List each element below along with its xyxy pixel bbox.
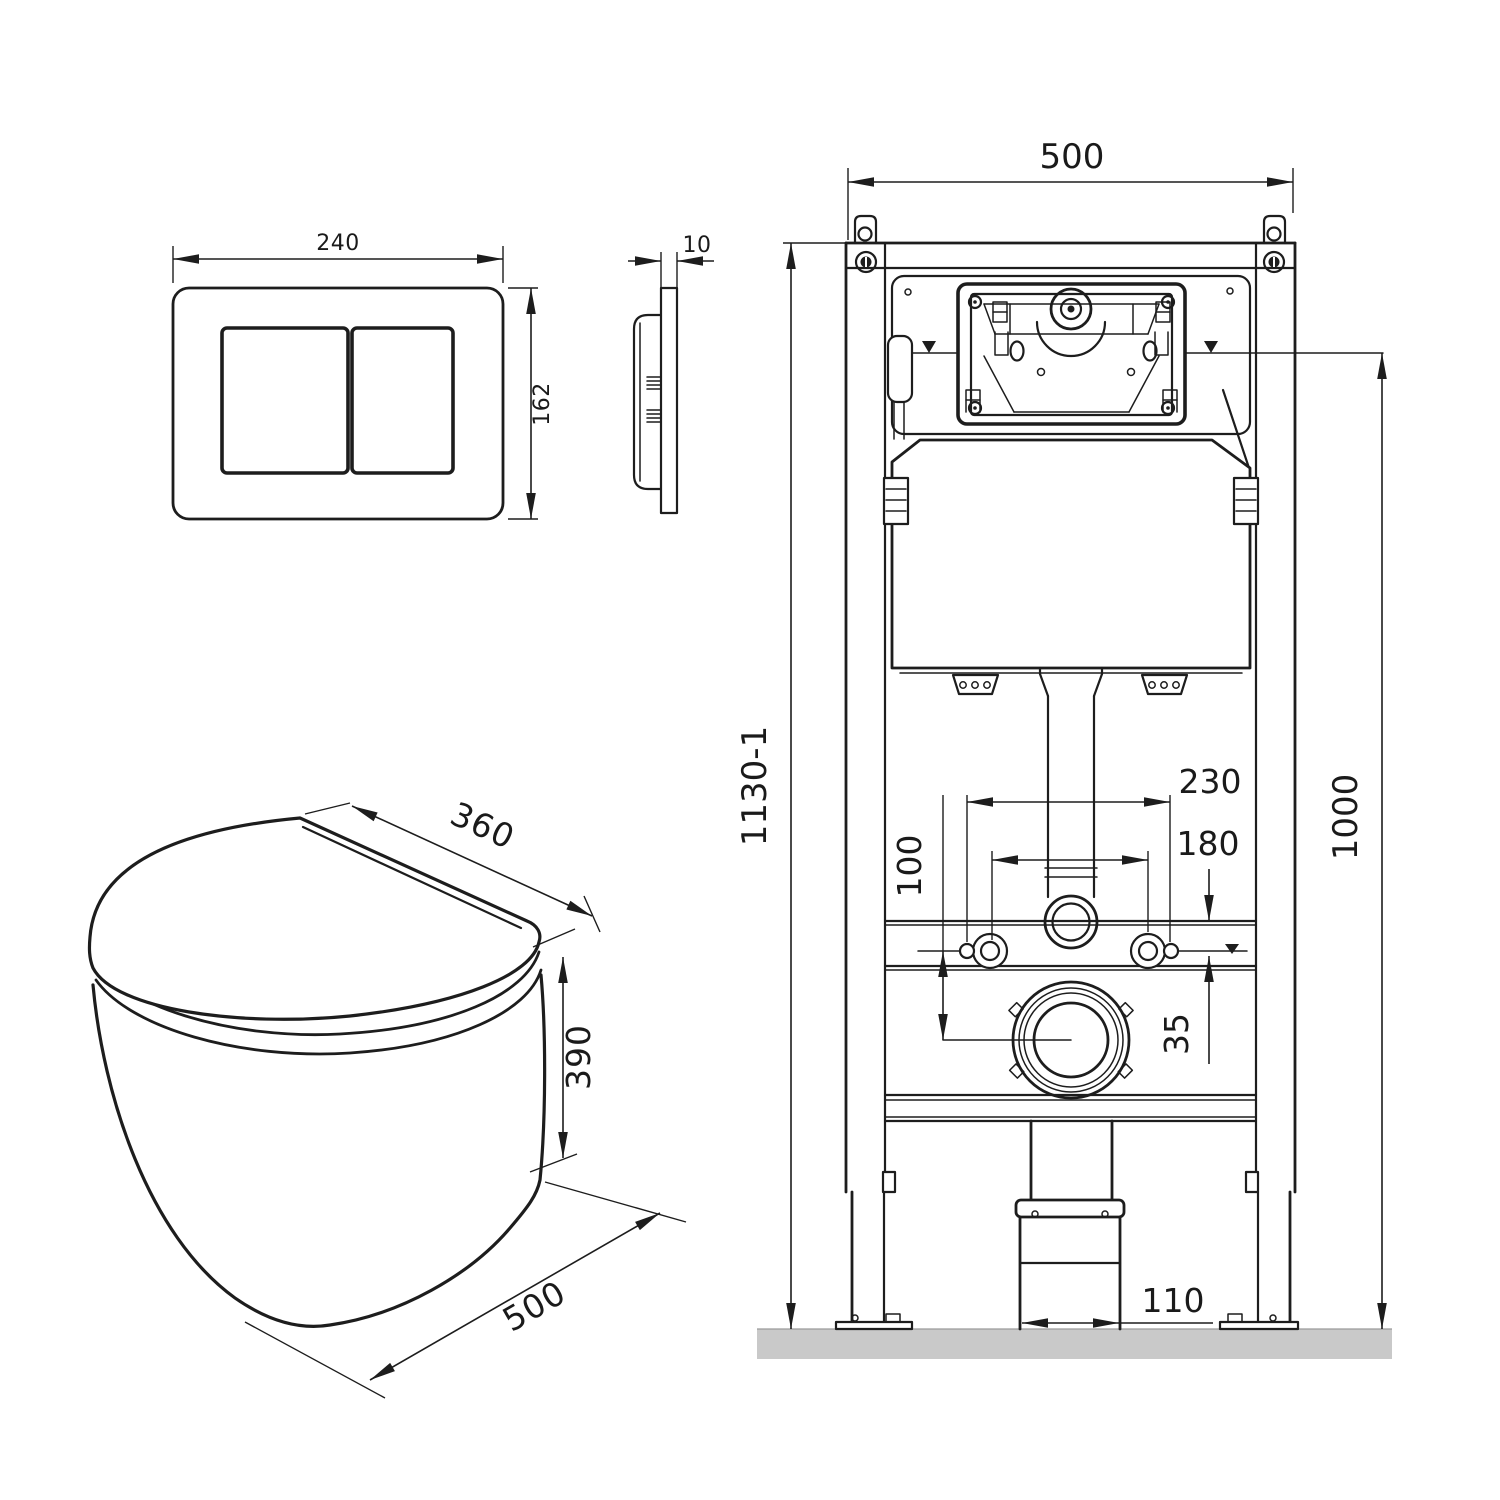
right-leg-clamp <box>1246 1172 1258 1192</box>
dim-plate-width: 240 <box>173 231 503 283</box>
plate-side-body <box>634 315 661 489</box>
level-mark-small <box>1225 944 1239 954</box>
bowl-body-outline <box>93 975 545 1326</box>
toilet-bowl-view: 360 390 500 <box>89 794 686 1398</box>
frame-top-crossbar <box>846 216 1295 272</box>
dim-bowl-height: 390 <box>530 929 598 1172</box>
water-level-line <box>893 341 1383 353</box>
frame-legs <box>836 1172 1298 1329</box>
dim-plate-thickness: 10 <box>628 233 714 288</box>
right-hanger-hook <box>1264 216 1285 243</box>
cistern-tank <box>884 440 1258 694</box>
dim-flush-level-height: 1000 <box>1326 353 1382 1329</box>
drain-pipe-width-label: 110 <box>1142 1281 1205 1320</box>
frame-width-label: 500 <box>1040 137 1105 177</box>
dim-drain-pipe-width: 110 <box>1022 1281 1213 1323</box>
flush-plate-side-view: 10 <box>628 233 714 513</box>
frame-total-height-label: 1130-1 <box>735 726 775 846</box>
flush-plate-front-view: 240 162 <box>173 231 555 519</box>
left-hanger-hook <box>855 216 876 243</box>
plate-side-panel <box>661 288 677 513</box>
installation-frame-view: 500 1130-1 1000 230 180 100 <box>735 137 1392 1359</box>
bowl-depth-label: 500 <box>496 1273 573 1340</box>
dim-frame-width: 500 <box>848 137 1293 240</box>
right-fixing-bolt <box>1131 934 1165 968</box>
technical-drawing-page: 240 162 10 <box>0 0 1500 1500</box>
bowl-seat-width-label: 360 <box>445 794 521 857</box>
drawing-canvas: 240 162 10 <box>0 0 1500 1500</box>
dim-frame-total-height: 1130-1 <box>735 243 846 1329</box>
dim-plate-height: 162 <box>508 288 555 519</box>
water-level-mark-left <box>922 341 936 353</box>
floor-strip <box>757 1329 1392 1359</box>
dim-inner-fixing-span: 180 <box>992 824 1240 940</box>
flush-level-height-label: 1000 <box>1326 774 1366 861</box>
lid-outline <box>89 818 539 1019</box>
plate-width-label: 240 <box>316 231 360 256</box>
right-fixing-pin <box>1164 944 1178 958</box>
flush-window-frame <box>958 284 1185 424</box>
plate-thickness-label: 10 <box>683 233 712 258</box>
left-foot-plate <box>836 1322 912 1329</box>
drain-drop-label: 100 <box>890 835 929 898</box>
flush-pipe <box>1040 668 1102 948</box>
outer-fixing-span-label: 230 <box>1179 762 1242 801</box>
window-mechanism <box>984 289 1159 356</box>
ledge-offset-label: 35 <box>1157 1013 1196 1055</box>
left-tank-clamp <box>884 478 908 524</box>
plate-height-label: 162 <box>530 382 555 426</box>
dim-bowl-depth: 500 <box>245 1182 686 1398</box>
water-level-mark-right <box>1204 341 1218 353</box>
right-tank-clamp <box>1234 478 1258 524</box>
left-leg-clamp <box>883 1172 895 1192</box>
inner-fixing-span-label: 180 <box>1177 824 1240 863</box>
bowl-height-label: 390 <box>559 1024 598 1090</box>
left-fixing-pin <box>960 944 974 958</box>
drain-pipe <box>1016 1121 1124 1329</box>
right-foot-plate <box>1220 1322 1298 1329</box>
inspection-shaft <box>892 276 1250 434</box>
left-fixing-bolt <box>973 934 1007 968</box>
